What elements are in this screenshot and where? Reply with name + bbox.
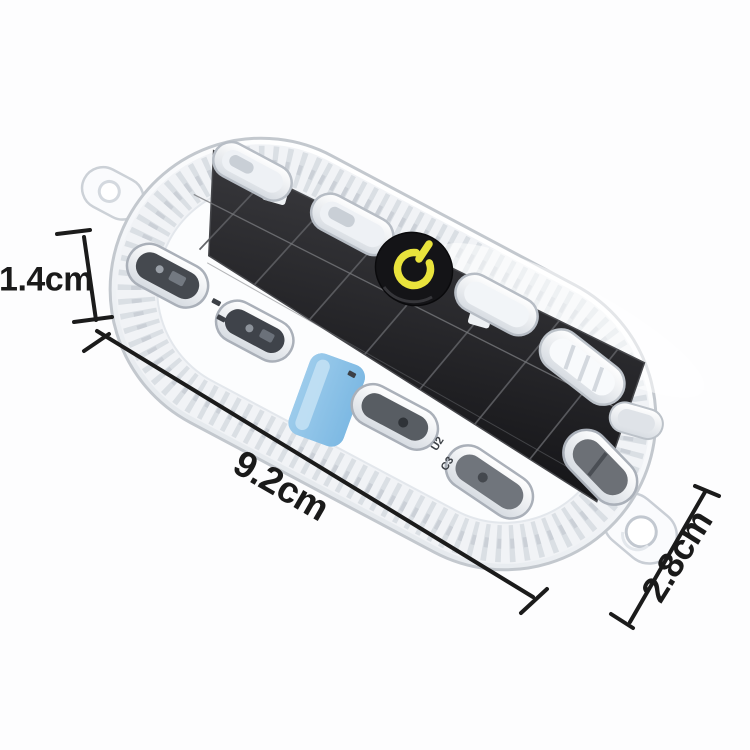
height-dimension-label: 1.4cm [0,261,93,300]
device-body: U2 C3 [7,56,750,653]
diagram-canvas: U2 C3 [0,0,750,750]
product-photo: U2 C3 [7,56,750,653]
product-size-diagram: U2 C3 [0,0,750,750]
